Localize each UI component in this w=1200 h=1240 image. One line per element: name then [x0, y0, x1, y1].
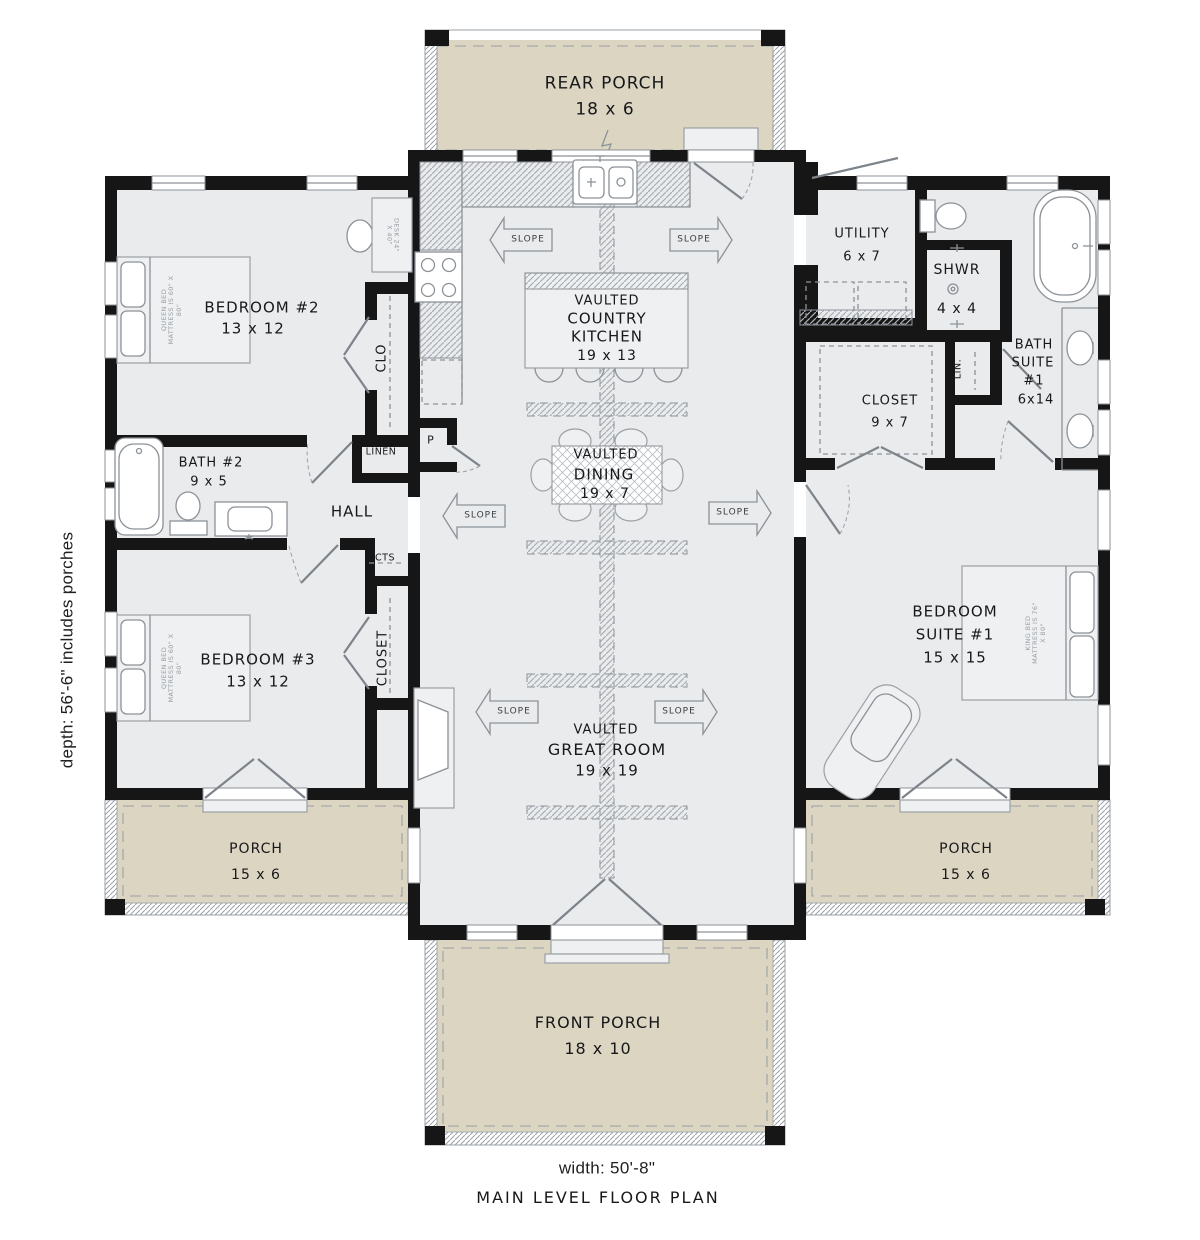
room-label-kitchen-1: VAULTED	[574, 295, 639, 308]
kitchen-sink	[573, 156, 637, 204]
slope-label-5: SLOPE	[497, 708, 531, 717]
dim-label-right-porch: 15 x 6	[941, 868, 991, 882]
room-label-closet-suite: CLOSET	[862, 395, 919, 408]
bedroom3-door-opening	[203, 788, 307, 800]
front-door-opening	[551, 925, 663, 940]
room-label-rear-porch: REAR PORCH	[545, 76, 666, 93]
front-door-step	[551, 940, 663, 954]
room-label-front-porch: FRONT PORCH	[535, 1015, 662, 1031]
room-label-great-1: VAULTED	[573, 724, 638, 737]
rear-door-step	[684, 128, 758, 150]
room-label-kitchen-2: COUNTRY	[567, 312, 646, 327]
bedroom3-door-step	[203, 800, 307, 812]
dim-label-shower: 4 x 4	[937, 302, 977, 316]
dim-label-closet-suite: 9 x 7	[871, 417, 909, 430]
rear-porch-area	[425, 30, 785, 162]
dim-label-utility: 6 x 7	[843, 251, 881, 264]
suite-toilet	[920, 200, 966, 232]
room-label-shower: SHWR	[934, 263, 981, 277]
room-label-left-porch: PORCH	[229, 842, 283, 856]
room-label-dining-1: VAULTED	[573, 449, 638, 462]
king-bed-note: KING BED MATTRESS IS 76" X 80"	[1025, 600, 1047, 666]
suite-tub	[1034, 190, 1096, 302]
slope-label-6: SLOPE	[662, 708, 696, 717]
dim-label-suite: 15 x 15	[923, 651, 987, 666]
room-label-bedroom2: BEDROOM #2	[204, 301, 319, 316]
rear-door-opening	[688, 150, 754, 162]
slope-label-2: SLOPE	[677, 236, 711, 245]
room-label-hall: HALL	[331, 505, 373, 520]
utility-door-leaf	[812, 158, 898, 178]
queen-bed-note-1: QUEEN BED MATTRESS IS 60" X 80"	[161, 275, 183, 345]
room-label-cts: CTS	[375, 553, 395, 563]
slope-label-3: SLOPE	[464, 512, 498, 521]
dim-label-left-porch: 15 x 6	[231, 868, 281, 882]
room-label-suite-2: SUITE #1	[916, 628, 994, 643]
room-label-lin: LIN.	[953, 359, 963, 379]
right-porch-area	[806, 800, 1110, 915]
slope-label-1: SLOPE	[511, 236, 545, 245]
dim-label-bedroom3: 13 x 12	[226, 675, 290, 690]
desk-note: DESK 24" X 40"	[385, 215, 400, 255]
room-label-utility: UTILITY	[834, 228, 889, 241]
bath2-tub	[115, 438, 163, 535]
room-label-bedroom3: BEDROOM #3	[200, 653, 315, 668]
front-door-step2	[545, 954, 669, 963]
suite-door-opening	[900, 788, 1010, 800]
slope-label-4: SLOPE	[716, 509, 750, 518]
room-label-kitchen-3: KITCHEN	[571, 330, 643, 345]
suite-door-step	[900, 800, 1010, 812]
room-label-dining-2: DINING	[574, 468, 634, 483]
room-label-bath2: BATH #2	[179, 457, 244, 470]
dim-label-bedroom2: 13 x 12	[221, 322, 285, 337]
width-note: width: 50'-8"	[559, 1160, 655, 1177]
dim-label-bath2: 9 x 5	[190, 476, 228, 489]
depth-note: depth: 56'-6" includes porches	[59, 532, 76, 769]
room-label-bath-suite-1: BATH	[1015, 339, 1054, 352]
dim-label-dining: 19 x 7	[580, 487, 630, 501]
plan-title: MAIN LEVEL FLOOR PLAN	[476, 1190, 719, 1206]
dim-label-bath-suite: 6x14	[1018, 394, 1055, 407]
room-label-great-2: GREAT ROOM	[548, 742, 666, 758]
room-label-right-porch: PORCH	[939, 842, 993, 856]
room-label-pantry: P	[427, 435, 435, 446]
range	[415, 252, 462, 302]
dim-label-front-porch: 18 x 10	[564, 1041, 631, 1057]
dim-label-great: 19 x 19	[575, 764, 639, 779]
floor-plan-page: REAR PORCH 18 x 6 VAULTED COUNTRY KITCHE…	[0, 0, 1200, 1240]
dim-label-rear-porch: 18 x 6	[575, 102, 634, 119]
bath2-vanity	[215, 502, 287, 539]
room-label-clo: CLO	[376, 343, 389, 372]
room-label-bath-suite-2: SUITE	[1012, 357, 1055, 370]
dim-label-kitchen: 19 x 13	[577, 349, 637, 363]
room-label-bath-suite-3: #1	[1023, 375, 1044, 388]
room-label-suite-1: BEDROOM	[912, 605, 997, 620]
fireplace	[414, 688, 454, 808]
room-label-bedroom3-closet: CLOSET	[377, 630, 390, 687]
room-label-linen: LINEN	[366, 447, 397, 457]
left-porch-area	[105, 800, 408, 915]
queen-bed-note-2: QUEEN BED MATTRESS IS 60" X 80"	[161, 633, 183, 703]
